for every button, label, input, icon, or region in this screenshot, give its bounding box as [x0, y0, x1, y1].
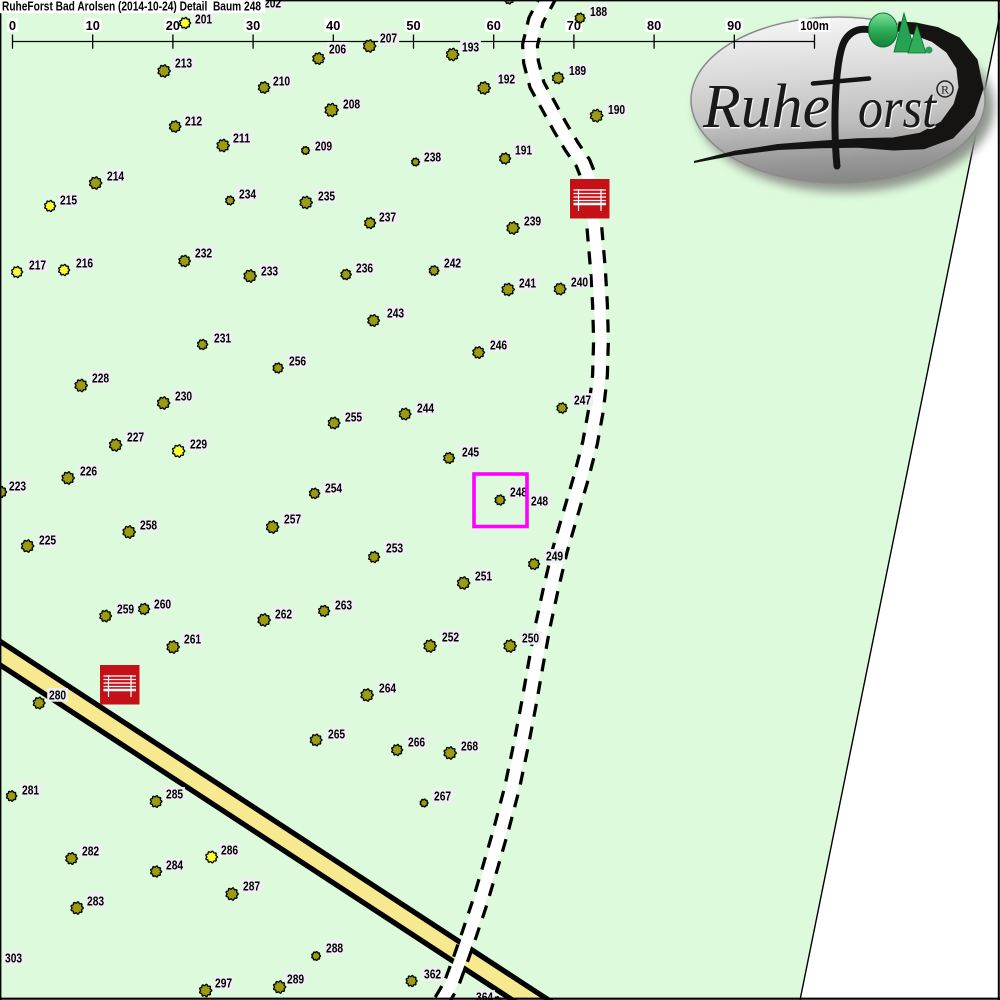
svg-text:192: 192 — [498, 73, 515, 87]
svg-text:288: 288 — [326, 942, 343, 956]
svg-text:256: 256 — [289, 355, 306, 369]
svg-text:60: 60 — [487, 19, 501, 33]
svg-text:100m: 100m — [800, 19, 829, 33]
svg-text:244: 244 — [417, 402, 434, 416]
svg-text:188: 188 — [590, 5, 607, 19]
svg-text:263: 263 — [335, 599, 352, 613]
svg-text:262: 262 — [275, 608, 292, 622]
svg-text:255: 255 — [345, 411, 362, 425]
svg-text:245: 245 — [462, 446, 479, 460]
svg-text:238: 238 — [424, 151, 441, 165]
svg-text:20: 20 — [166, 19, 180, 33]
svg-text:80: 80 — [647, 19, 661, 33]
svg-text:208: 208 — [343, 98, 360, 112]
svg-text:242: 242 — [444, 257, 461, 271]
svg-text:282: 282 — [82, 845, 99, 859]
svg-text:246: 246 — [490, 339, 507, 353]
svg-text:258: 258 — [140, 519, 157, 533]
svg-text:253: 253 — [386, 542, 403, 556]
svg-text:40: 40 — [326, 19, 340, 33]
svg-text:235: 235 — [318, 190, 335, 204]
svg-text:251: 251 — [475, 570, 492, 584]
svg-text:280: 280 — [49, 689, 66, 703]
svg-text:10: 10 — [86, 19, 100, 33]
svg-text:252: 252 — [442, 631, 459, 645]
svg-text:216: 216 — [76, 257, 93, 271]
svg-text:229: 229 — [190, 438, 207, 452]
svg-text:247: 247 — [574, 394, 591, 408]
svg-text:215: 215 — [60, 194, 77, 208]
svg-text:267: 267 — [434, 790, 451, 804]
svg-text:243: 243 — [387, 307, 404, 321]
svg-text:201: 201 — [195, 13, 212, 27]
svg-text:207: 207 — [380, 32, 397, 46]
svg-text:228: 228 — [92, 372, 109, 386]
svg-text:260: 260 — [154, 598, 171, 612]
svg-text:248: 248 — [510, 486, 527, 500]
svg-text:237: 237 — [379, 211, 396, 225]
svg-text:50: 50 — [406, 19, 420, 33]
svg-text:239: 239 — [524, 215, 541, 229]
svg-text:227: 227 — [127, 431, 144, 445]
svg-text:225: 225 — [39, 534, 56, 548]
svg-text:0: 0 — [9, 19, 16, 33]
svg-text:241: 241 — [519, 277, 536, 291]
svg-text:233: 233 — [261, 265, 278, 279]
svg-text:249: 249 — [546, 550, 563, 564]
svg-text:212: 212 — [185, 115, 202, 129]
svg-text:289: 289 — [287, 973, 304, 987]
svg-text:281: 281 — [22, 784, 39, 798]
svg-text:193: 193 — [462, 41, 479, 55]
svg-text:264: 264 — [379, 682, 396, 696]
svg-text:206: 206 — [329, 43, 346, 57]
svg-text:231: 231 — [214, 332, 231, 346]
svg-text:213: 213 — [175, 57, 192, 71]
svg-text:248: 248 — [531, 495, 548, 509]
svg-text:362: 362 — [424, 968, 441, 982]
svg-text:90: 90 — [727, 19, 741, 33]
svg-text:268: 268 — [461, 740, 478, 754]
svg-text:259: 259 — [117, 603, 134, 617]
svg-text:250: 250 — [522, 632, 539, 646]
svg-text:210: 210 — [273, 75, 290, 89]
svg-text:189: 189 — [569, 64, 586, 78]
svg-text:RuheForst Bad Arolsen (2014-10: RuheForst Bad Arolsen (2014-10-24) Detai… — [2, 0, 261, 14]
svg-text:257: 257 — [284, 513, 301, 527]
svg-text:284: 284 — [166, 859, 183, 873]
svg-text:236: 236 — [356, 262, 373, 276]
svg-text:254: 254 — [325, 482, 342, 496]
svg-text:202: 202 — [264, 0, 281, 11]
svg-text:230: 230 — [175, 390, 192, 404]
svg-text:265: 265 — [328, 728, 345, 742]
svg-text:211: 211 — [233, 132, 250, 146]
svg-text:214: 214 — [107, 170, 124, 184]
svg-text:226: 226 — [80, 465, 97, 479]
svg-text:234: 234 — [239, 188, 256, 202]
svg-text:240: 240 — [571, 276, 588, 290]
svg-text:30: 30 — [246, 19, 260, 33]
svg-text:191: 191 — [515, 144, 532, 158]
svg-text:261: 261 — [184, 633, 201, 647]
svg-text:209: 209 — [315, 140, 332, 154]
svg-text:283: 283 — [87, 895, 104, 909]
svg-text:orst: orst — [858, 77, 937, 140]
svg-text:285: 285 — [166, 788, 183, 802]
svg-text:266: 266 — [408, 736, 425, 750]
svg-text:217: 217 — [29, 259, 46, 273]
svg-text:190: 190 — [608, 103, 625, 117]
svg-text:297: 297 — [215, 977, 232, 991]
svg-text:232: 232 — [195, 247, 212, 261]
svg-text:286: 286 — [221, 844, 238, 858]
svg-text:303: 303 — [5, 952, 22, 966]
svg-text:R: R — [941, 83, 949, 97]
svg-text:223: 223 — [9, 480, 26, 494]
svg-text:287: 287 — [243, 880, 260, 894]
